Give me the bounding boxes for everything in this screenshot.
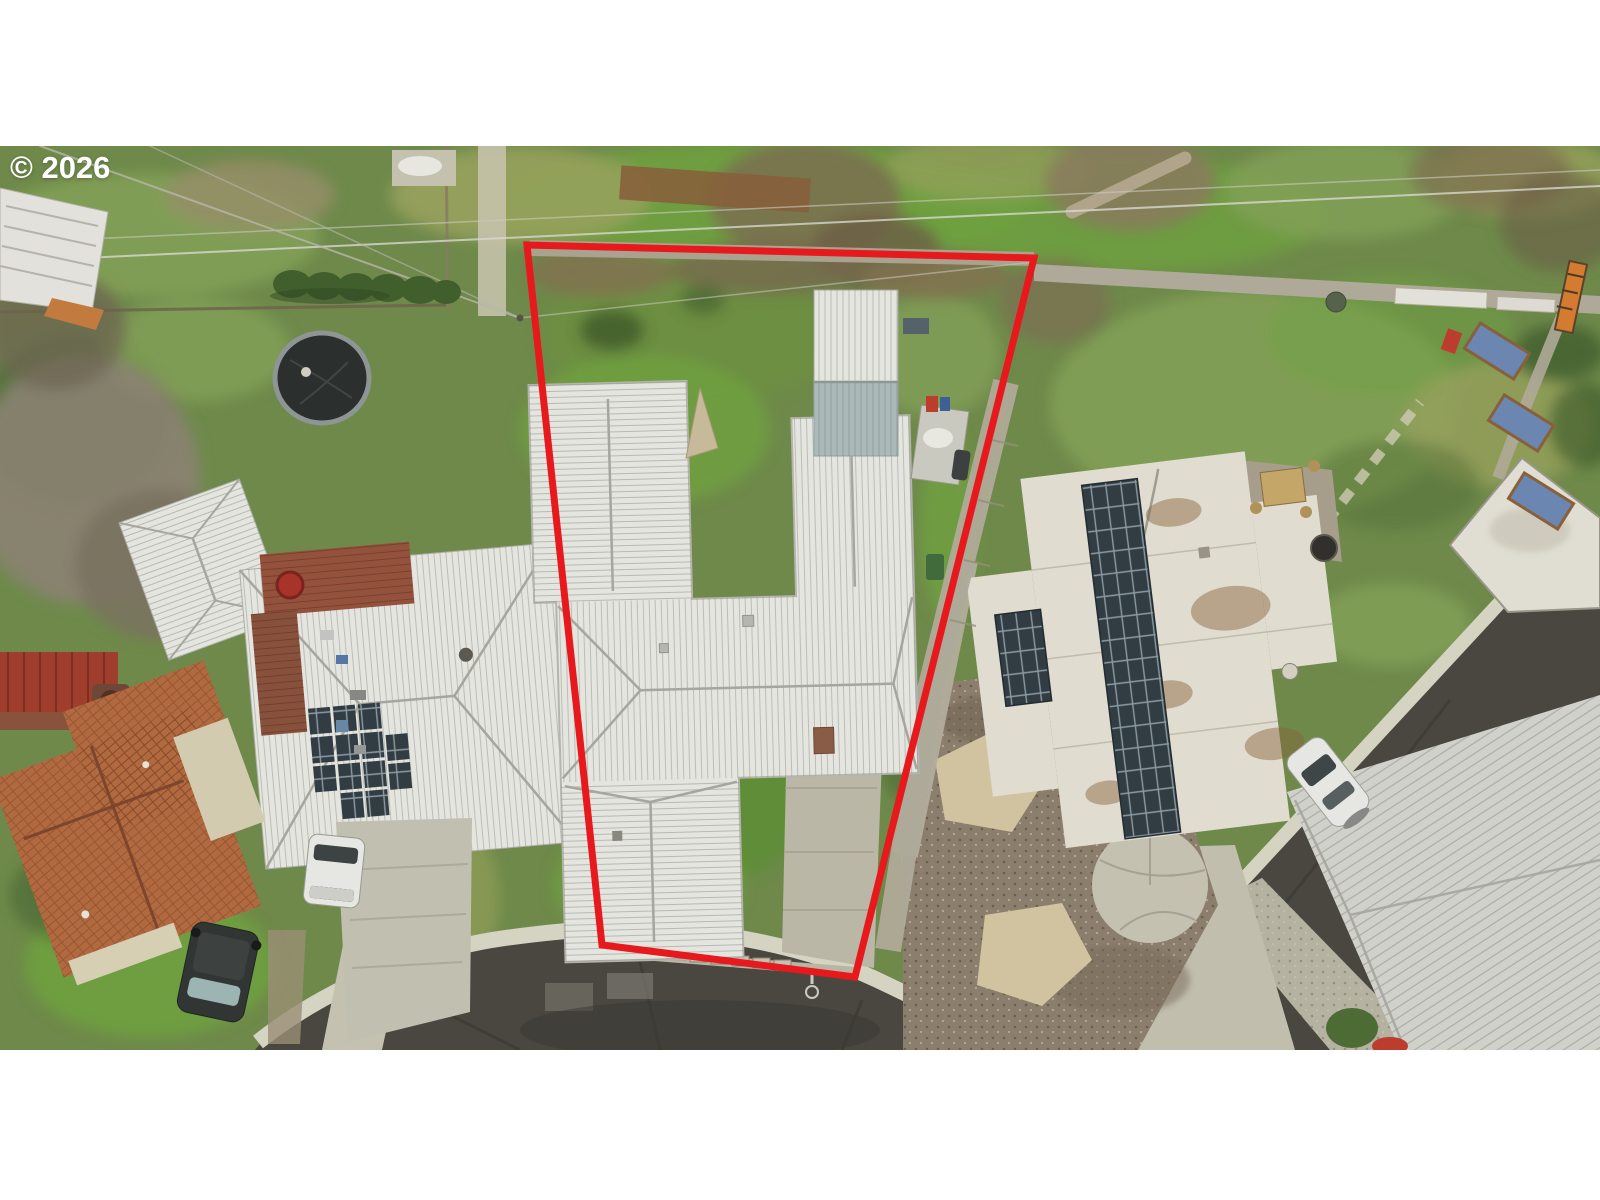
screenshot-root: © 2026 [0,0,1600,1200]
aerial-photo [0,146,1600,1050]
photo-tint [0,146,1600,1050]
letterbox-bottom [0,1050,1600,1200]
copyright-watermark: © 2026 [10,150,110,186]
letterbox-top [0,0,1600,146]
